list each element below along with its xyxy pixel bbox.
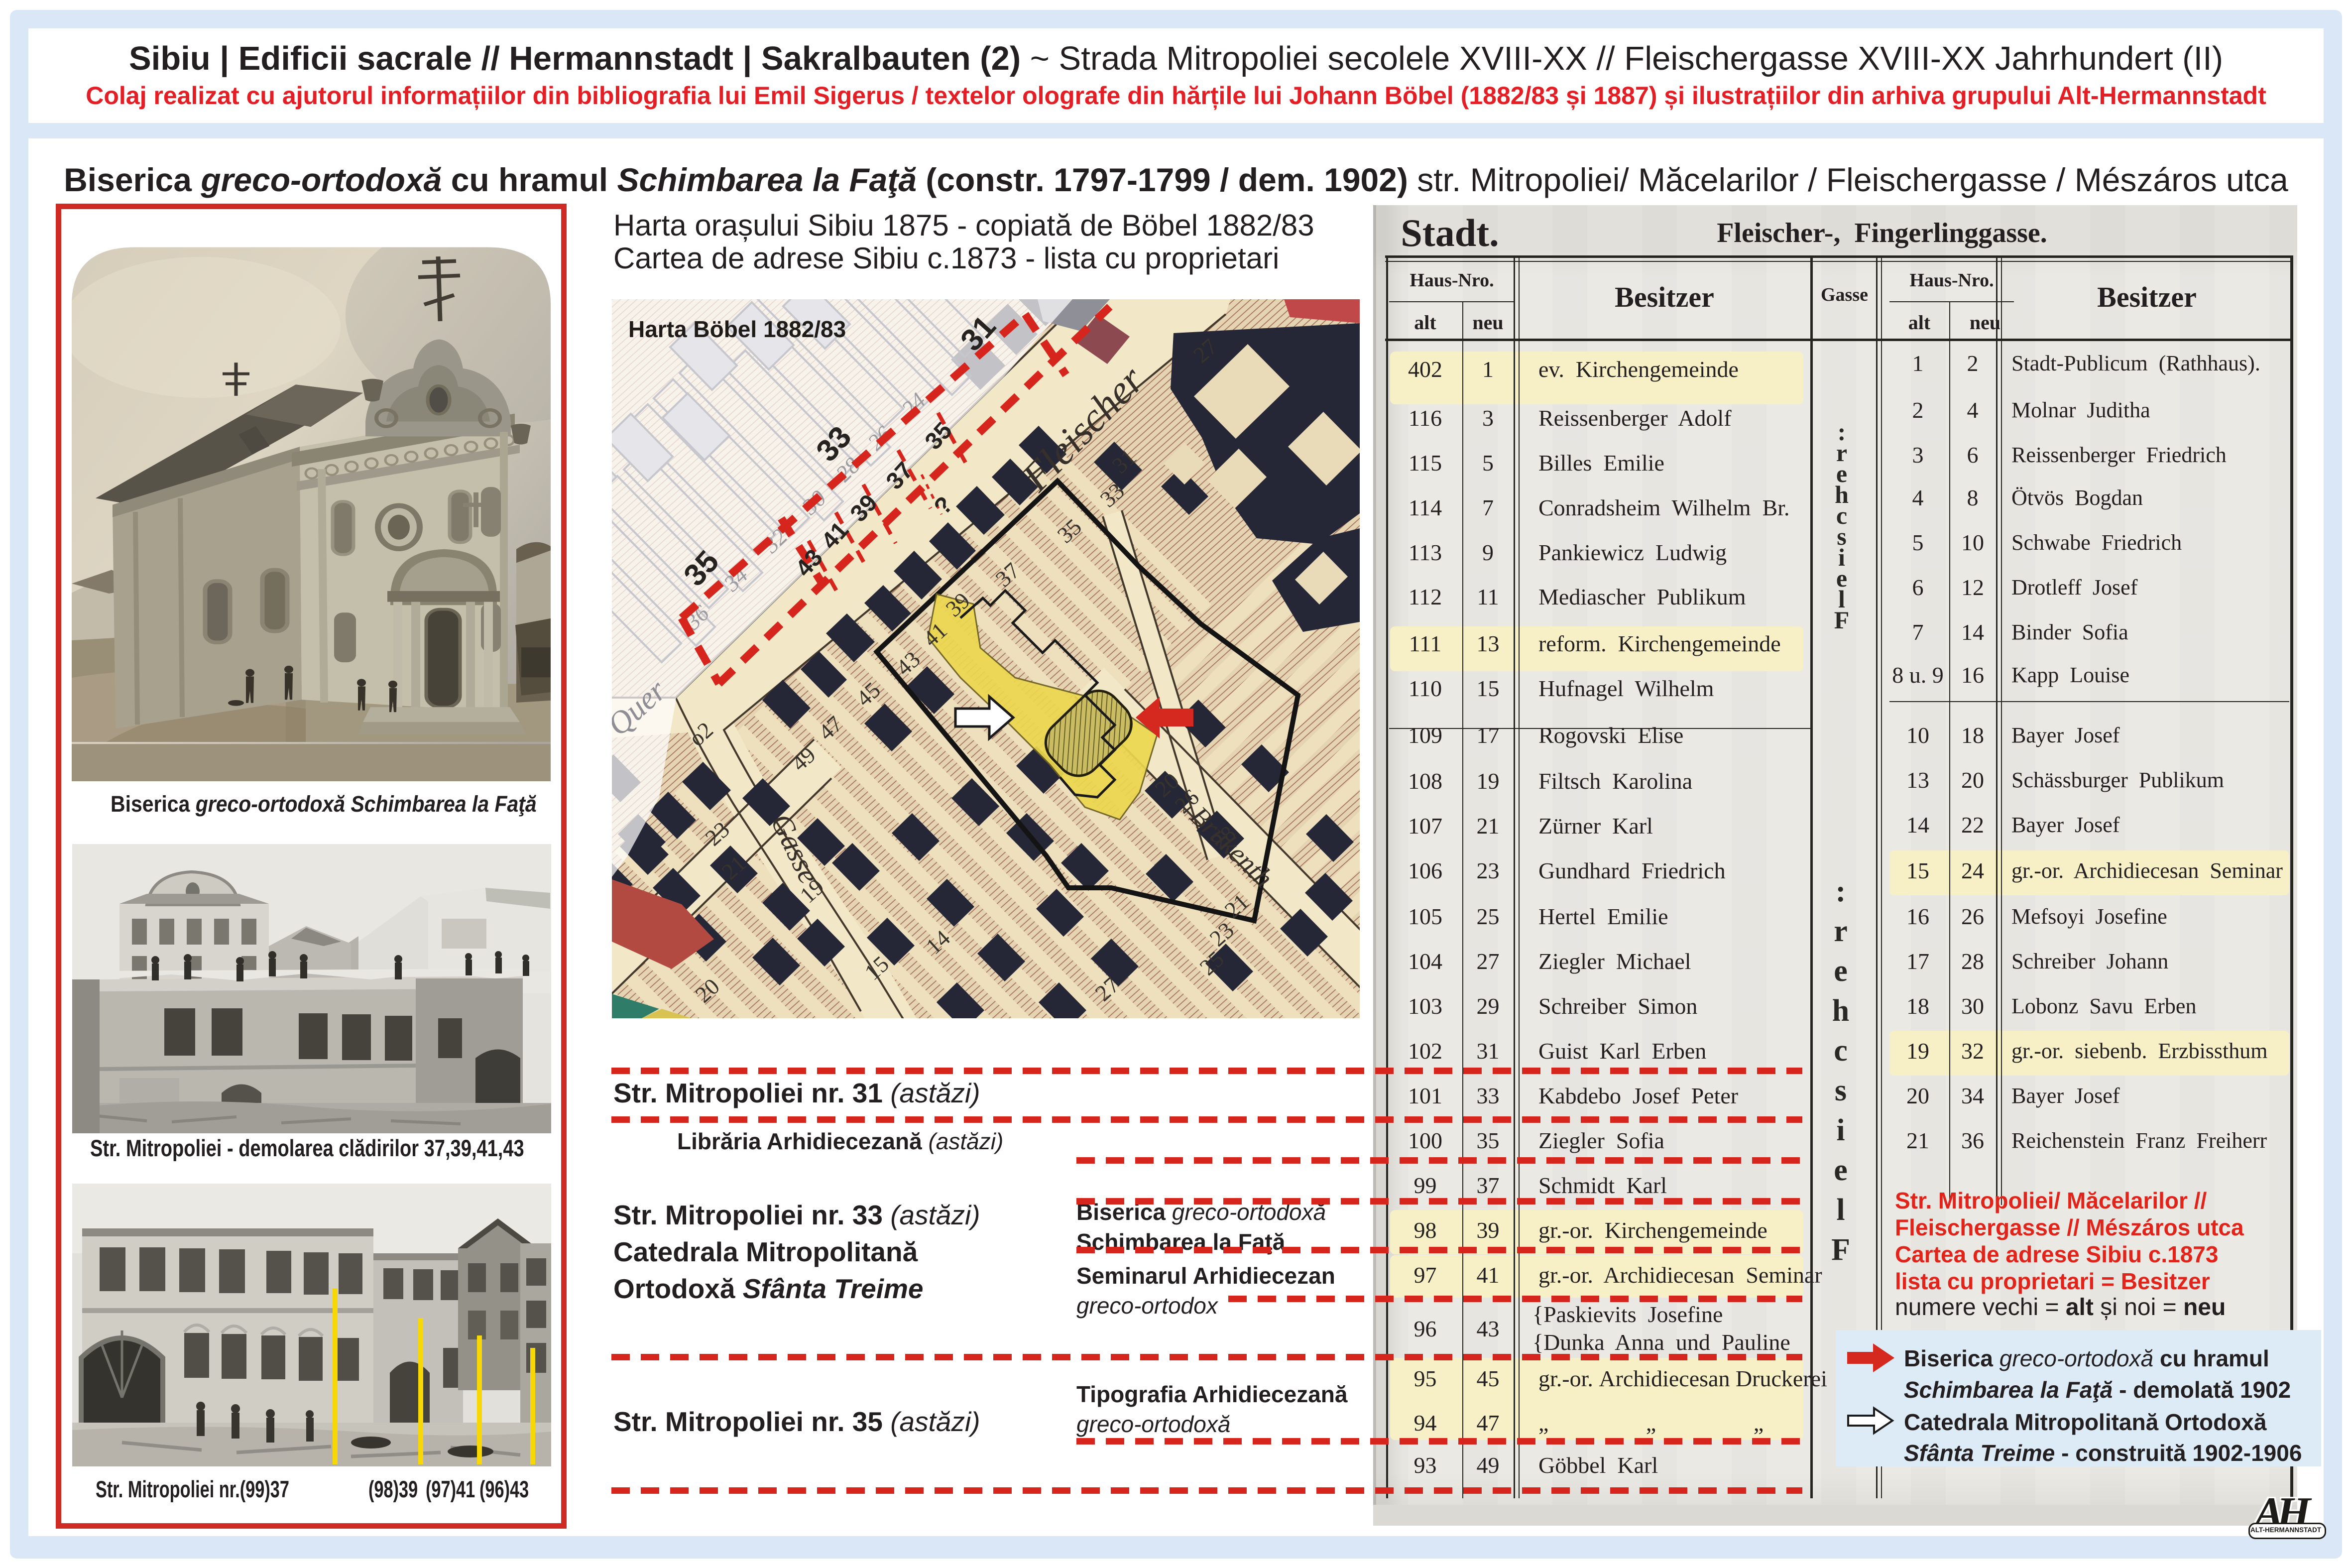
svg-text:Harta Böbel 1882/83: Harta Böbel 1882/83 bbox=[628, 316, 846, 342]
